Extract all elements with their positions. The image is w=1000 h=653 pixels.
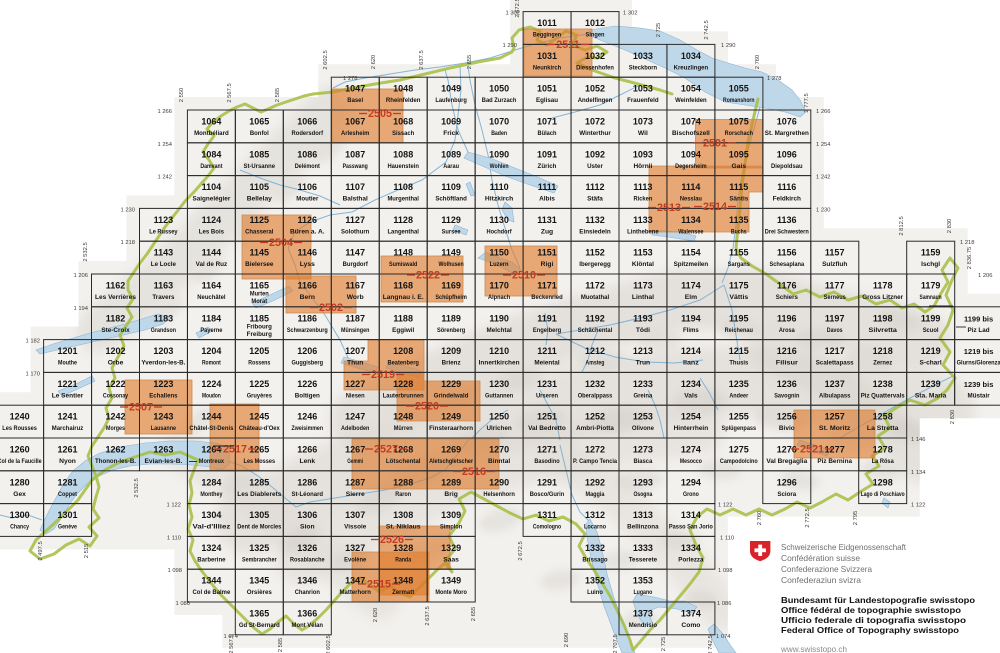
svg-text:1162: 1162 bbox=[106, 281, 126, 291]
svg-text:Passwang: Passwang bbox=[343, 163, 368, 170]
svg-text:1146: 1146 bbox=[298, 248, 318, 258]
svg-text:1129: 1129 bbox=[441, 215, 461, 225]
svg-text:Oberalppass: Oberalppass bbox=[578, 392, 613, 399]
svg-text:Hauenstein: Hauenstein bbox=[387, 163, 419, 170]
svg-text:Raron: Raron bbox=[395, 491, 411, 498]
svg-text:Scalettapass: Scalettapass bbox=[816, 360, 854, 367]
svg-text:Grindelwald: Grindelwald bbox=[434, 392, 469, 399]
svg-text:Monthey: Monthey bbox=[200, 491, 222, 498]
svg-text:Confederaziun svizra: Confederaziun svizra bbox=[781, 575, 861, 585]
svg-text:1374: 1374 bbox=[681, 609, 701, 619]
svg-text:1294: 1294 bbox=[681, 477, 701, 487]
svg-text:1353: 1353 bbox=[633, 576, 653, 586]
svg-text:Lago di Poschiavo: Lago di Poschiavo bbox=[861, 491, 905, 498]
svg-text:Montreux: Montreux bbox=[199, 458, 224, 465]
svg-text:1287: 1287 bbox=[345, 477, 365, 487]
svg-text:1136: 1136 bbox=[777, 215, 797, 225]
svg-text:2526: 2526 bbox=[380, 534, 404, 546]
svg-text:1091: 1091 bbox=[537, 149, 557, 159]
svg-text:Sargans: Sargans bbox=[728, 261, 750, 268]
svg-text:1234: 1234 bbox=[681, 379, 701, 389]
svg-text:2 836.75: 2 836.75 bbox=[967, 247, 973, 270]
svg-text:1143: 1143 bbox=[154, 248, 174, 258]
svg-text:1085: 1085 bbox=[249, 149, 269, 159]
svg-text:1147: 1147 bbox=[345, 248, 365, 258]
svg-text:1 122: 1 122 bbox=[718, 503, 733, 509]
svg-text:Confederazione Svizzera: Confederazione Svizzera bbox=[781, 564, 872, 574]
svg-text:1221: 1221 bbox=[57, 379, 77, 389]
svg-text:1068: 1068 bbox=[393, 117, 413, 127]
svg-text:1109: 1109 bbox=[441, 182, 461, 192]
svg-text:Greina: Greina bbox=[633, 392, 652, 399]
svg-text:1188: 1188 bbox=[393, 313, 413, 323]
svg-text:1 290: 1 290 bbox=[502, 43, 517, 49]
svg-text:Thonon-les-B.: Thonon-les-B. bbox=[95, 458, 136, 465]
svg-text:Savognin: Savognin bbox=[774, 392, 799, 399]
svg-text:1306: 1306 bbox=[297, 510, 317, 520]
svg-text:1166: 1166 bbox=[298, 281, 318, 291]
svg-text:Buchs: Buchs bbox=[731, 228, 747, 235]
svg-text:1191: 1191 bbox=[537, 313, 557, 323]
svg-text:1301: 1301 bbox=[57, 510, 77, 520]
svg-text:2 795: 2 795 bbox=[853, 511, 859, 526]
svg-text:Chasseral: Chasseral bbox=[245, 228, 273, 235]
svg-text:Müstair: Müstair bbox=[968, 392, 990, 399]
svg-text:Reichenau: Reichenau bbox=[725, 327, 753, 334]
svg-text:Rodersdorf: Rodersdorf bbox=[292, 130, 324, 137]
svg-text:Val-d'Illiez: Val-d'Illiez bbox=[193, 524, 232, 531]
svg-text:1217: 1217 bbox=[825, 346, 845, 356]
svg-text:Montbéliard: Montbéliard bbox=[194, 130, 229, 137]
svg-text:1130: 1130 bbox=[489, 215, 509, 225]
svg-text:Basodino: Basodino bbox=[534, 458, 559, 465]
svg-text:S-charl: S-charl bbox=[920, 360, 942, 367]
svg-text:1156: 1156 bbox=[777, 248, 797, 258]
svg-text:Freiburg: Freiburg bbox=[247, 331, 272, 338]
svg-text:Spitzmeilen: Spitzmeilen bbox=[674, 261, 709, 268]
svg-text:1261: 1261 bbox=[57, 445, 77, 455]
svg-text:1157: 1157 bbox=[825, 248, 845, 258]
svg-text:2520: 2520 bbox=[415, 401, 439, 413]
svg-text:1089: 1089 bbox=[441, 149, 461, 159]
svg-text:1076: 1076 bbox=[777, 117, 797, 127]
svg-text:1194: 1194 bbox=[681, 313, 701, 323]
svg-text:1153: 1153 bbox=[633, 248, 653, 258]
svg-text:1237: 1237 bbox=[825, 379, 845, 389]
svg-text:Lenk: Lenk bbox=[299, 458, 315, 465]
svg-text:1198: 1198 bbox=[873, 313, 893, 323]
svg-text:1164: 1164 bbox=[202, 281, 222, 291]
svg-text:1291: 1291 bbox=[537, 477, 557, 487]
svg-text:1196: 1196 bbox=[777, 313, 797, 323]
svg-text:Linthebene: Linthebene bbox=[627, 228, 659, 235]
svg-text:1206: 1206 bbox=[297, 346, 317, 356]
svg-text:Nyon: Nyon bbox=[59, 458, 76, 465]
svg-text:Burgdorf: Burgdorf bbox=[343, 261, 369, 268]
svg-text:Zernez: Zernez bbox=[873, 360, 892, 367]
svg-text:Schweizerische Eidgenossenscha: Schweizerische Eidgenossenschaft bbox=[781, 542, 907, 552]
svg-text:2 515: 2 515 bbox=[84, 544, 90, 559]
svg-text:Travers: Travers bbox=[152, 294, 174, 301]
svg-text:1152: 1152 bbox=[585, 248, 605, 258]
svg-text:1135: 1135 bbox=[729, 215, 749, 225]
svg-text:Worb: Worb bbox=[347, 294, 364, 301]
svg-text:1241: 1241 bbox=[57, 412, 77, 422]
svg-text:1201: 1201 bbox=[57, 346, 77, 356]
svg-text:Dent de Morcles: Dent de Morcles bbox=[237, 524, 281, 531]
svg-text:Trun: Trun bbox=[636, 360, 651, 367]
svg-text:Langenthal: Langenthal bbox=[387, 228, 419, 235]
svg-text:1211: 1211 bbox=[537, 346, 557, 356]
svg-text:Lyss: Lyss bbox=[300, 261, 315, 268]
svg-text:1 098: 1 098 bbox=[718, 568, 733, 574]
svg-text:1132: 1132 bbox=[585, 215, 605, 225]
svg-text:1 242: 1 242 bbox=[157, 175, 172, 181]
svg-text:1334: 1334 bbox=[681, 543, 701, 553]
svg-text:Zug: Zug bbox=[541, 228, 553, 235]
svg-text:Frauenfeld: Frauenfeld bbox=[627, 97, 659, 104]
svg-text:Schüpfheim: Schüpfheim bbox=[435, 294, 467, 301]
svg-text:Echallens: Echallens bbox=[149, 392, 178, 399]
svg-text:2511: 2511 bbox=[556, 39, 579, 51]
svg-text:1110: 1110 bbox=[490, 182, 509, 192]
svg-text:1115: 1115 bbox=[729, 182, 748, 192]
svg-text:Thusis: Thusis bbox=[729, 360, 748, 367]
svg-text:1253: 1253 bbox=[633, 412, 653, 422]
svg-text:Les Verrières: Les Verrières bbox=[95, 294, 136, 301]
svg-text:Flims: Flims bbox=[683, 327, 699, 334]
svg-text:1280: 1280 bbox=[10, 477, 30, 487]
svg-text:1 266: 1 266 bbox=[157, 109, 172, 115]
svg-text:1096: 1096 bbox=[777, 149, 797, 159]
svg-text:Brig: Brig bbox=[444, 491, 457, 498]
svg-text:Maggia: Maggia bbox=[586, 491, 605, 498]
svg-text:1293: 1293 bbox=[633, 477, 653, 487]
svg-text:1114: 1114 bbox=[681, 182, 700, 192]
svg-text:Mendrisio: Mendrisio bbox=[629, 622, 657, 629]
svg-text:Vissoie: Vissoie bbox=[344, 524, 366, 531]
svg-text:2 725: 2 725 bbox=[656, 23, 662, 38]
svg-text:Silvretta: Silvretta bbox=[869, 327, 898, 334]
svg-text:Orsières: Orsières bbox=[247, 589, 272, 596]
svg-text:Laufenburg: Laufenburg bbox=[435, 97, 467, 104]
svg-text:Grono: Grono bbox=[683, 491, 699, 498]
svg-text:Sciora: Sciora bbox=[777, 491, 796, 498]
svg-text:Fribourg: Fribourg bbox=[247, 323, 272, 330]
svg-text:1151: 1151 bbox=[537, 248, 557, 258]
svg-text:2 532.5: 2 532.5 bbox=[134, 478, 140, 497]
svg-text:Vättis: Vättis bbox=[729, 294, 748, 301]
svg-text:1071: 1071 bbox=[537, 117, 557, 127]
svg-text:1050: 1050 bbox=[489, 84, 509, 94]
svg-text:Aletschgletscher: Aletschgletscher bbox=[429, 458, 473, 465]
svg-text:1346: 1346 bbox=[297, 576, 317, 586]
svg-text:1298: 1298 bbox=[873, 477, 893, 487]
svg-text:Solothurn: Solothurn bbox=[341, 228, 369, 235]
svg-text:1199: 1199 bbox=[921, 313, 941, 323]
svg-text:2510: 2510 bbox=[512, 270, 536, 282]
svg-text:2 655: 2 655 bbox=[467, 55, 473, 70]
svg-text:1190: 1190 bbox=[489, 313, 509, 323]
svg-text:1214: 1214 bbox=[681, 346, 701, 356]
svg-text:Mesocco: Mesocco bbox=[680, 458, 702, 465]
svg-text:Beckenried: Beckenried bbox=[531, 294, 563, 301]
svg-text:Gex: Gex bbox=[13, 491, 26, 498]
svg-text:Samnaun: Samnaun bbox=[920, 294, 942, 301]
svg-text:Adelboden: Adelboden bbox=[341, 425, 369, 432]
svg-text:1049: 1049 bbox=[441, 84, 461, 94]
svg-text:1195: 1195 bbox=[729, 313, 749, 323]
svg-text:Châtel-St-Denis: Châtel-St-Denis bbox=[189, 425, 233, 432]
svg-text:Rigi: Rigi bbox=[541, 261, 554, 268]
svg-text:Ste-Croix: Ste-Croix bbox=[101, 327, 130, 334]
svg-text:Guttannen: Guttannen bbox=[485, 392, 513, 399]
svg-text:Hörnli: Hörnli bbox=[633, 163, 652, 170]
svg-text:1 074: 1 074 bbox=[716, 634, 731, 640]
svg-text:2 620: 2 620 bbox=[373, 608, 379, 623]
svg-text:2 707.5: 2 707.5 bbox=[613, 634, 619, 653]
svg-text:2 725: 2 725 bbox=[661, 637, 667, 652]
svg-text:Ambri-Piotta: Ambri-Piotta bbox=[576, 425, 614, 432]
svg-text:www.swisstopo.ch: www.swisstopo.ch bbox=[780, 644, 847, 653]
svg-text:Ibergeregg: Ibergeregg bbox=[579, 261, 611, 268]
svg-text:Hinterrhein: Hinterrhein bbox=[674, 425, 709, 432]
svg-text:La Rösa: La Rösa bbox=[872, 458, 894, 465]
svg-text:Moudon: Moudon bbox=[202, 392, 221, 399]
svg-text:1149: 1149 bbox=[441, 248, 461, 258]
svg-text:Singen: Singen bbox=[586, 32, 605, 39]
svg-text:1 206: 1 206 bbox=[73, 273, 88, 279]
svg-text:1111: 1111 bbox=[538, 182, 557, 192]
svg-text:1236: 1236 bbox=[777, 379, 797, 389]
svg-text:Albis: Albis bbox=[539, 196, 555, 203]
svg-text:Steckborn: Steckborn bbox=[629, 64, 657, 71]
svg-text:2507: 2507 bbox=[129, 402, 153, 414]
svg-text:1260: 1260 bbox=[10, 445, 30, 455]
svg-text:Col de la Faucille: Col de la Faucille bbox=[0, 458, 42, 465]
svg-text:1074: 1074 bbox=[681, 117, 701, 127]
svg-text:Evolène: Evolène bbox=[344, 556, 366, 563]
svg-text:Bonfol: Bonfol bbox=[250, 130, 269, 137]
svg-text:1069: 1069 bbox=[441, 117, 461, 127]
svg-text:Urseren: Urseren bbox=[536, 392, 558, 399]
svg-text:1075: 1075 bbox=[729, 117, 749, 127]
svg-text:2522: 2522 bbox=[416, 270, 440, 282]
svg-text:1179: 1179 bbox=[921, 281, 941, 291]
svg-text:1271: 1271 bbox=[537, 445, 557, 455]
svg-text:Luino: Luino bbox=[587, 589, 603, 596]
svg-text:1345: 1345 bbox=[249, 576, 269, 586]
svg-text:1106: 1106 bbox=[298, 182, 318, 192]
svg-text:1226: 1226 bbox=[297, 379, 317, 389]
svg-text:2 830: 2 830 bbox=[950, 410, 956, 425]
svg-text:2 620: 2 620 bbox=[371, 55, 377, 70]
svg-text:Sierre: Sierre bbox=[346, 491, 365, 498]
svg-text:Comologno: Comologno bbox=[533, 524, 561, 531]
svg-text:1329: 1329 bbox=[441, 543, 461, 553]
svg-text:1290: 1290 bbox=[489, 477, 509, 487]
svg-text:1174: 1174 bbox=[681, 281, 701, 291]
svg-text:Aarau: Aarau bbox=[443, 163, 459, 170]
svg-text:Mürren: Mürren bbox=[394, 425, 413, 432]
svg-text:1 242: 1 242 bbox=[816, 175, 831, 181]
svg-text:1 266: 1 266 bbox=[816, 109, 831, 115]
svg-text:Finsteraarhorn: Finsteraarhorn bbox=[429, 425, 473, 432]
svg-text:1183: 1183 bbox=[154, 313, 174, 323]
svg-text:Ilanz: Ilanz bbox=[683, 360, 699, 367]
svg-text:1269: 1269 bbox=[441, 445, 461, 455]
svg-text:2513: 2513 bbox=[657, 202, 681, 214]
svg-text:1224: 1224 bbox=[201, 379, 221, 389]
svg-text:1216: 1216 bbox=[777, 346, 797, 356]
svg-text:Alpnach: Alpnach bbox=[488, 294, 510, 301]
svg-text:1228: 1228 bbox=[393, 379, 413, 389]
svg-text:Bischofszell: Bischofszell bbox=[672, 130, 710, 137]
svg-text:1256: 1256 bbox=[777, 412, 797, 422]
svg-text:Sembrancher: Sembrancher bbox=[242, 556, 277, 563]
svg-text:1239 bis: 1239 bis bbox=[964, 380, 994, 389]
svg-text:1272: 1272 bbox=[585, 445, 605, 455]
svg-text:Filisur: Filisur bbox=[776, 360, 799, 367]
svg-text:1155: 1155 bbox=[729, 248, 749, 258]
svg-text:Beatenberg: Beatenberg bbox=[387, 360, 419, 367]
svg-text:1 110: 1 110 bbox=[167, 535, 181, 541]
svg-text:Wil: Wil bbox=[638, 130, 648, 137]
svg-text:2 690: 2 690 bbox=[564, 633, 570, 648]
svg-text:1093: 1093 bbox=[633, 149, 653, 159]
svg-text:2 602.5: 2 602.5 bbox=[326, 635, 332, 653]
svg-text:2514: 2514 bbox=[703, 201, 727, 213]
svg-text:2 637.5: 2 637.5 bbox=[425, 606, 431, 625]
svg-text:Wolhusen: Wolhusen bbox=[439, 261, 464, 268]
svg-text:1258: 1258 bbox=[873, 412, 893, 422]
svg-text:1270: 1270 bbox=[489, 445, 509, 455]
svg-text:1145: 1145 bbox=[250, 248, 270, 258]
svg-text:1257: 1257 bbox=[825, 412, 845, 422]
svg-text:1055: 1055 bbox=[729, 84, 749, 94]
svg-text:1051: 1051 bbox=[537, 84, 557, 94]
svg-text:Wohlen: Wohlen bbox=[490, 163, 509, 170]
svg-text:1238: 1238 bbox=[873, 379, 893, 389]
svg-text:1292: 1292 bbox=[585, 477, 605, 487]
svg-text:1047: 1047 bbox=[345, 84, 365, 94]
svg-text:1086: 1086 bbox=[297, 149, 317, 159]
svg-text:1254: 1254 bbox=[681, 412, 701, 422]
svg-text:Engelberg: Engelberg bbox=[533, 327, 561, 334]
svg-text:Val Bregaglia: Val Bregaglia bbox=[766, 458, 807, 465]
svg-text:Niesen: Niesen bbox=[346, 392, 365, 399]
svg-text:2505: 2505 bbox=[368, 108, 392, 120]
svg-text:Rosablanche: Rosablanche bbox=[290, 556, 325, 563]
svg-text:Marchairuz: Marchairuz bbox=[52, 425, 84, 432]
svg-text:P. Campo Tencia: P. Campo Tencia bbox=[573, 458, 617, 465]
svg-text:Olivone: Olivone bbox=[632, 425, 654, 432]
svg-text:Les Rousses: Les Rousses bbox=[2, 425, 37, 432]
svg-text:Balsthal: Balsthal bbox=[343, 196, 368, 203]
svg-text:Sörenberg: Sörenberg bbox=[437, 327, 465, 334]
svg-text:Melchtal: Melchtal bbox=[487, 327, 512, 334]
svg-text:Vals: Vals bbox=[684, 392, 698, 399]
svg-text:Sulzfluh: Sulzfluh bbox=[822, 261, 847, 268]
svg-text:Ricken: Ricken bbox=[633, 196, 652, 203]
svg-text:Passo San Jorio: Passo San Jorio bbox=[669, 524, 713, 531]
svg-text:1203: 1203 bbox=[153, 346, 173, 356]
svg-text:2516: 2516 bbox=[462, 466, 486, 478]
svg-text:1262: 1262 bbox=[105, 445, 125, 455]
svg-text:Les Diablerets: Les Diablerets bbox=[237, 491, 281, 498]
svg-text:1313: 1313 bbox=[633, 510, 653, 520]
svg-text:2501: 2501 bbox=[703, 138, 727, 150]
svg-text:1325: 1325 bbox=[249, 543, 269, 553]
svg-text:1227: 1227 bbox=[345, 379, 365, 389]
svg-text:1053: 1053 bbox=[633, 84, 653, 94]
svg-text:1229: 1229 bbox=[441, 379, 461, 389]
svg-text:1349: 1349 bbox=[441, 576, 461, 586]
svg-text:Romont: Romont bbox=[202, 360, 221, 367]
svg-text:2517: 2517 bbox=[223, 444, 247, 456]
svg-text:Simplon: Simplon bbox=[440, 524, 462, 531]
svg-text:Arosa: Arosa bbox=[779, 327, 795, 334]
svg-text:1167: 1167 bbox=[345, 281, 365, 291]
svg-text:1094: 1094 bbox=[681, 149, 701, 159]
svg-text:Eggiwil: Eggiwil bbox=[392, 327, 414, 334]
svg-text:1326: 1326 bbox=[297, 543, 317, 553]
svg-text:Ischgl: Ischgl bbox=[921, 261, 940, 268]
svg-text:Brissago: Brissago bbox=[582, 556, 607, 563]
svg-text:1208: 1208 bbox=[393, 346, 413, 356]
svg-text:1278: 1278 bbox=[873, 445, 893, 455]
svg-text:Les Bois: Les Bois bbox=[199, 228, 224, 235]
svg-text:1314: 1314 bbox=[681, 510, 701, 520]
svg-text:2 567.5: 2 567.5 bbox=[227, 83, 233, 102]
svg-text:1244: 1244 bbox=[201, 412, 221, 422]
svg-text:Schöftland: Schöftland bbox=[435, 196, 467, 203]
svg-text:1048: 1048 bbox=[393, 84, 413, 94]
svg-text:1332: 1332 bbox=[585, 543, 605, 553]
svg-text:Scuol: Scuol bbox=[923, 327, 939, 334]
svg-text:1327: 1327 bbox=[345, 543, 365, 553]
svg-text:Campodolcino: Campodolcino bbox=[720, 458, 758, 465]
svg-text:Gais: Gais bbox=[732, 163, 747, 170]
svg-text:Degersheim: Degersheim bbox=[675, 163, 707, 170]
svg-text:1107: 1107 bbox=[345, 182, 365, 192]
svg-text:1131: 1131 bbox=[537, 215, 557, 225]
svg-text:Morges: Morges bbox=[106, 425, 125, 432]
svg-text:Baden: Baden bbox=[491, 130, 507, 137]
svg-text:2527: 2527 bbox=[374, 444, 398, 456]
svg-text:St. Moritz: St. Moritz bbox=[819, 425, 851, 432]
svg-text:2 742.5: 2 742.5 bbox=[708, 635, 714, 653]
svg-text:Säntis: Säntis bbox=[729, 196, 748, 203]
svg-text:1072: 1072 bbox=[585, 117, 605, 127]
svg-text:1205: 1205 bbox=[249, 346, 269, 356]
svg-text:Gemmi: Gemmi bbox=[347, 458, 363, 465]
svg-text:Saas: Saas bbox=[443, 556, 459, 563]
svg-text:1249: 1249 bbox=[441, 412, 461, 422]
svg-text:1242: 1242 bbox=[105, 412, 125, 422]
svg-text:Linthal: Linthal bbox=[632, 294, 654, 301]
svg-text:1373: 1373 bbox=[633, 609, 653, 619]
svg-text:1134: 1134 bbox=[681, 215, 701, 225]
svg-text:1168: 1168 bbox=[393, 281, 413, 291]
svg-text:Schwarzenburg: Schwarzenburg bbox=[287, 327, 328, 334]
svg-text:2 602.5: 2 602.5 bbox=[323, 50, 329, 69]
svg-text:1218: 1218 bbox=[873, 346, 893, 356]
svg-text:1182: 1182 bbox=[106, 313, 126, 323]
svg-text:1126: 1126 bbox=[298, 215, 318, 225]
svg-text:1246: 1246 bbox=[297, 412, 317, 422]
svg-text:Lauterbrunnen: Lauterbrunnen bbox=[383, 392, 424, 399]
